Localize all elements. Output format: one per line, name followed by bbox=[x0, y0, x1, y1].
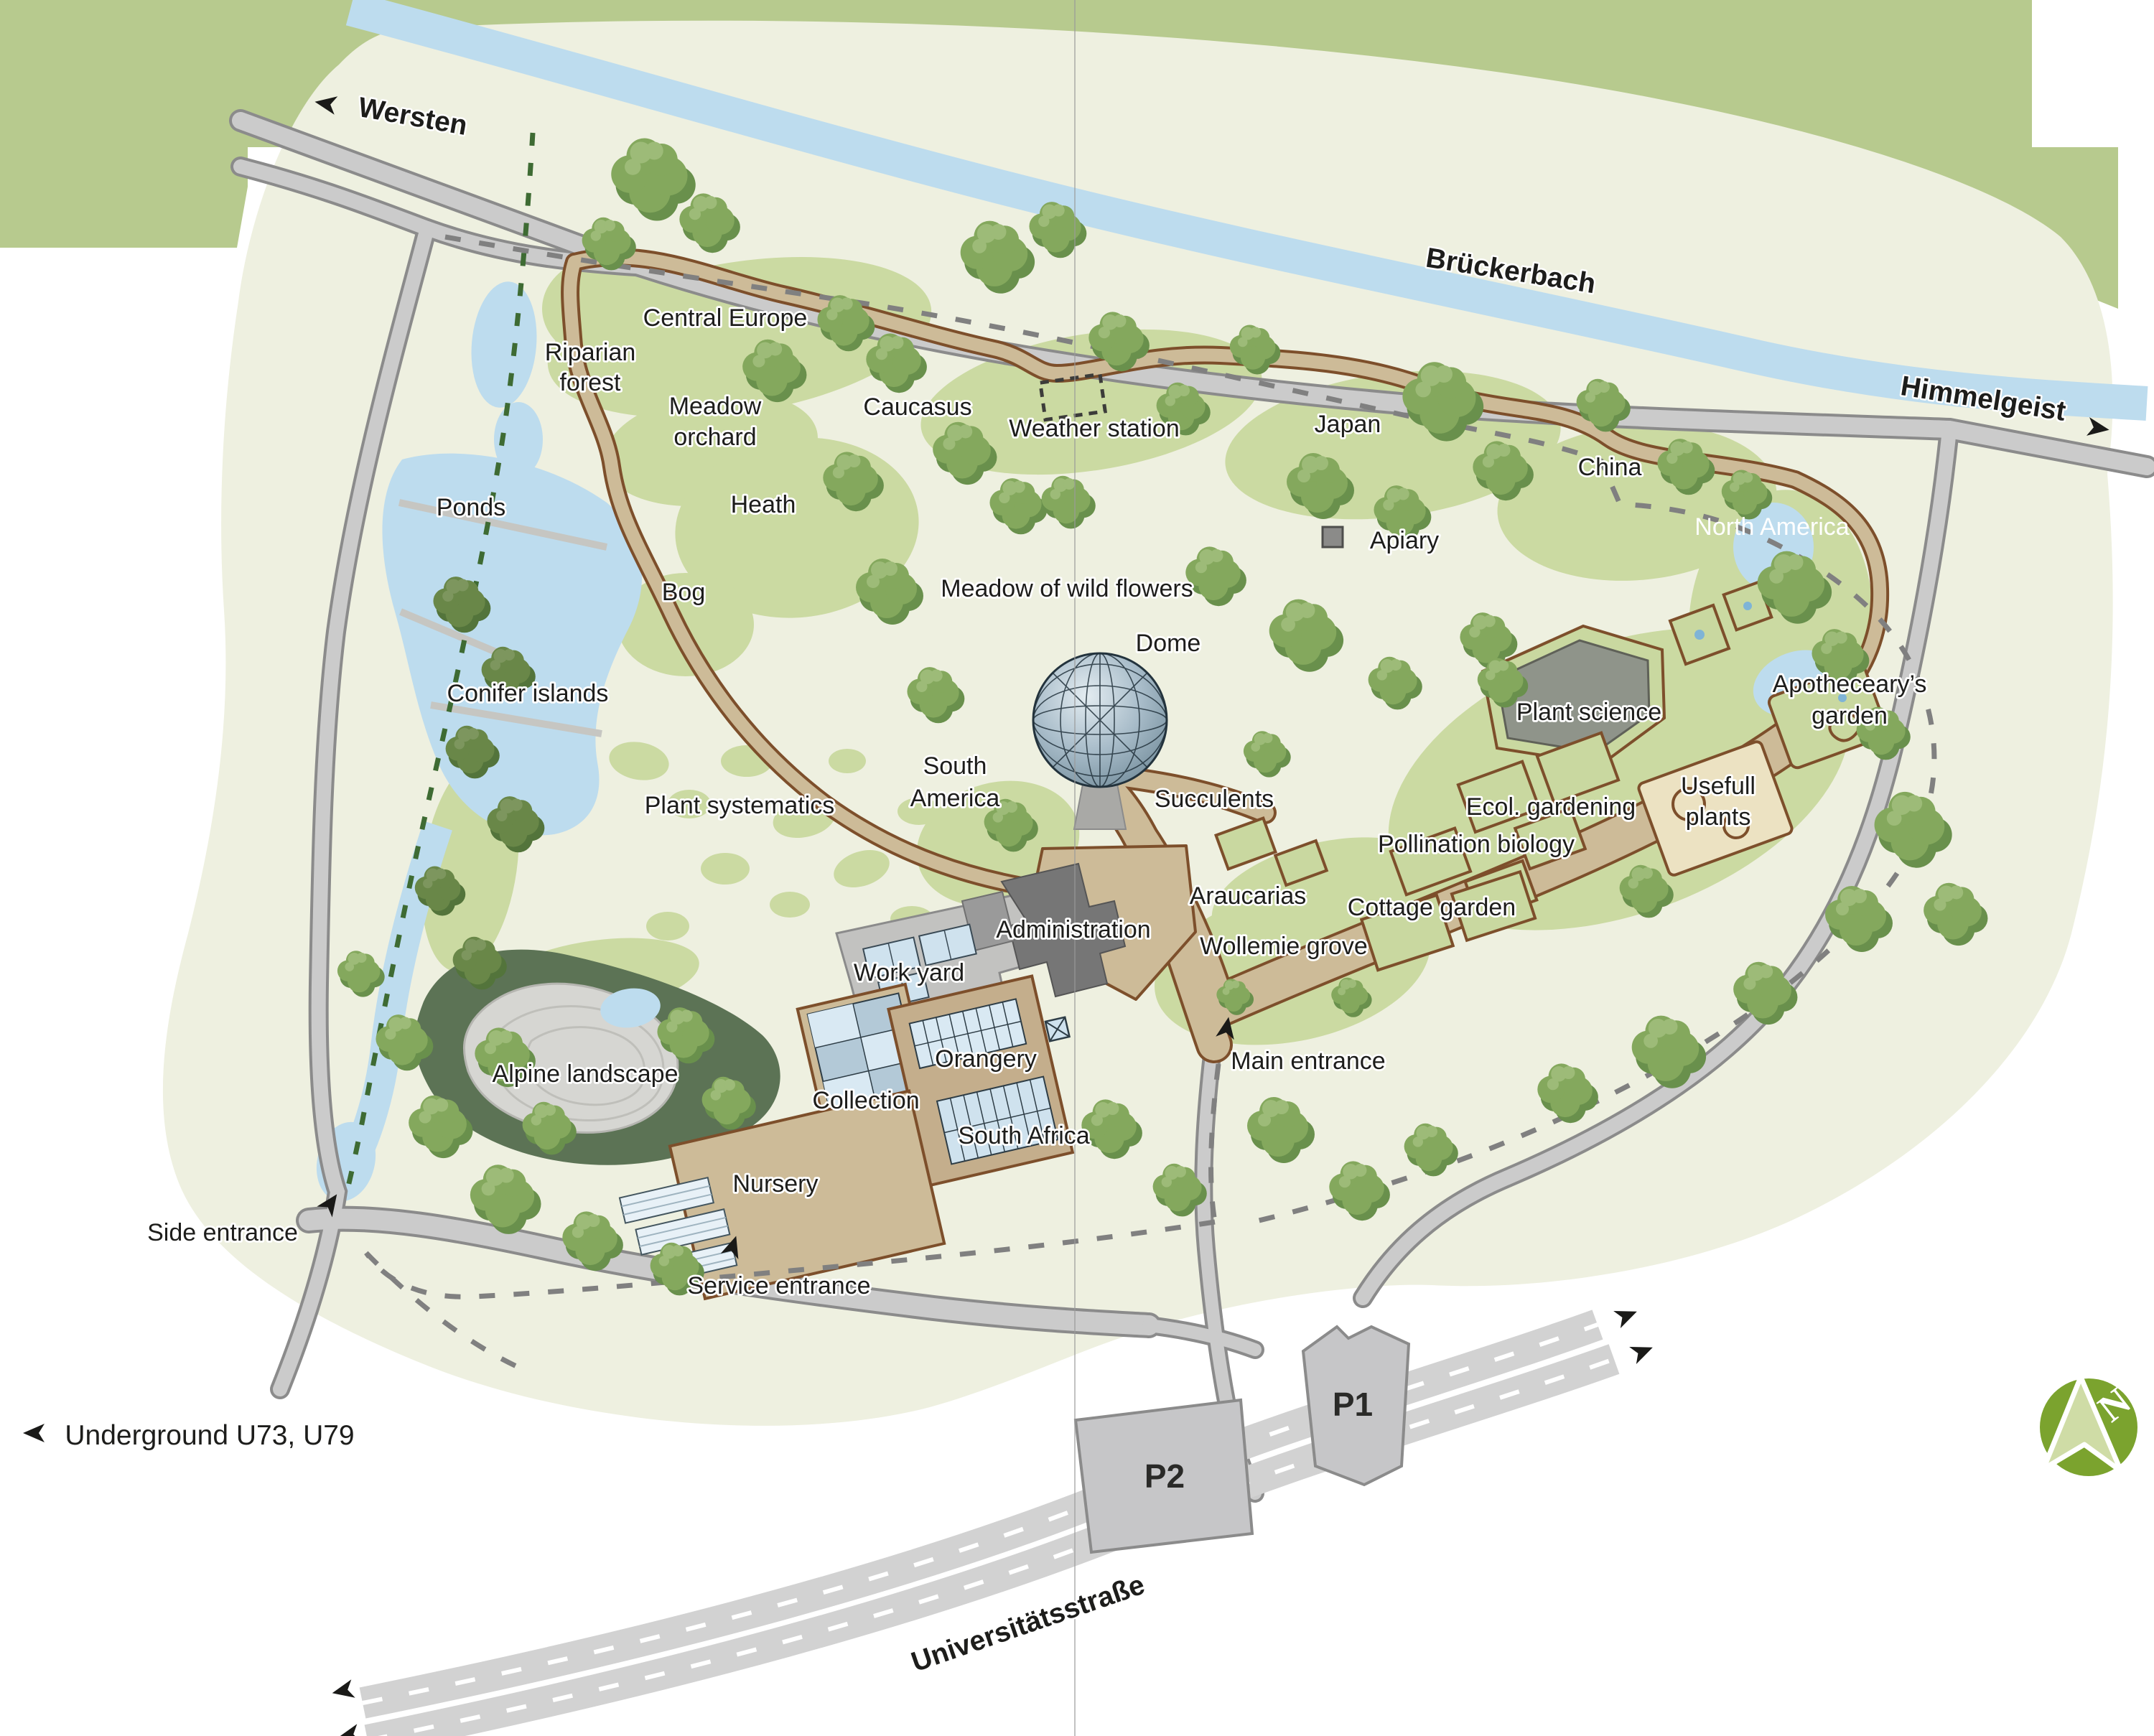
label-parking-p1: P1 bbox=[1333, 1386, 1373, 1423]
label-south-africa: South Africa bbox=[958, 1122, 1089, 1149]
label-side-entrance: Side entrance bbox=[147, 1219, 298, 1246]
garden-map: N Wersten Brückerbach Himmelgeist Underg… bbox=[0, 0, 2154, 1736]
label-work-yard: Work yard bbox=[854, 959, 964, 986]
label-conifer-islands: Conifer islands bbox=[447, 680, 609, 707]
label-service-entrance: Service entrance bbox=[687, 1272, 870, 1299]
label-alpine-landscape: Alpine landscape bbox=[493, 1060, 679, 1088]
label-japan: Japan bbox=[1315, 411, 1381, 438]
label-weather-station: Weather station bbox=[1009, 415, 1180, 442]
label-araucarias: Araucarias bbox=[1190, 882, 1307, 910]
label-orangery: Orangery bbox=[935, 1045, 1037, 1073]
label-underground: Underground U73, U79 bbox=[65, 1420, 354, 1451]
label-wollemie-grove: Wollemie grove bbox=[1200, 933, 1368, 960]
label-nursery: Nursery bbox=[732, 1170, 818, 1198]
label-collection: Collection bbox=[812, 1087, 919, 1114]
label-main-entrance: Main entrance bbox=[1231, 1047, 1385, 1075]
label-apiary: Apiary bbox=[1370, 527, 1439, 554]
label-dome: Dome bbox=[1136, 630, 1201, 657]
label-central-europe: Central Europe bbox=[643, 304, 808, 332]
label-heath: Heath bbox=[731, 491, 796, 518]
label-caucasus: Caucasus bbox=[863, 393, 971, 421]
label-parking-p2: P2 bbox=[1144, 1457, 1185, 1495]
label-succulents: Succulents bbox=[1155, 785, 1274, 813]
label-bog: Bog bbox=[662, 579, 706, 606]
label-china: China bbox=[1578, 454, 1642, 481]
label-plant-systematics: Plant systematics bbox=[645, 792, 835, 819]
label-north-america: North America bbox=[1694, 513, 1849, 541]
label-pollination-biology: Pollination biology bbox=[1378, 831, 1575, 858]
label-cottage-garden: Cottage garden bbox=[1348, 894, 1516, 921]
label-ponds: Ponds bbox=[437, 494, 505, 521]
apiary-icon bbox=[1323, 527, 1343, 547]
label-plant-science: Plant science bbox=[1516, 699, 1661, 726]
label-meadow-of-wild-flow: Meadow of wild flowers bbox=[941, 575, 1193, 602]
label-administration: Administration bbox=[996, 916, 1150, 943]
label-ecol-gardening: Ecol. gardening bbox=[1466, 793, 1636, 821]
